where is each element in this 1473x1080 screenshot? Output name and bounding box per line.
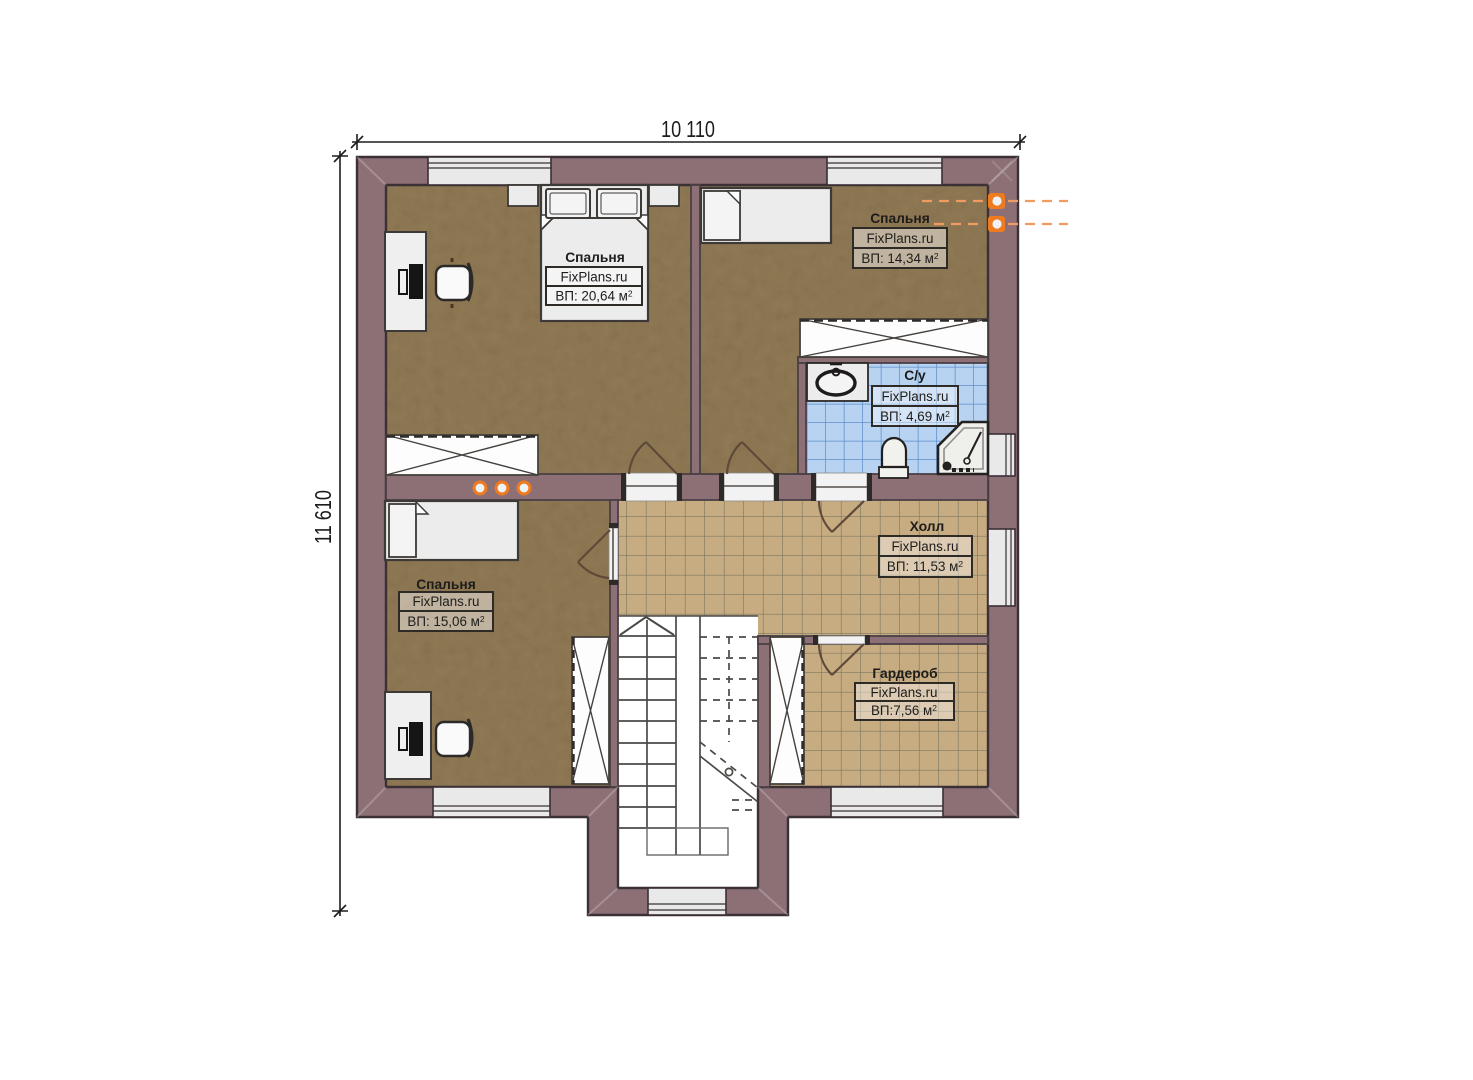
svg-text:FixPlans.ru: FixPlans.ru <box>561 270 628 285</box>
svg-text:Гардероб: Гардероб <box>872 666 937 681</box>
svg-text:ВП: 20,64 м2: ВП: 20,64 м2 <box>555 289 632 304</box>
svg-text:ВП: 11,53 м2: ВП: 11,53 м2 <box>887 559 963 574</box>
svg-text:Спальня: Спальня <box>870 211 930 226</box>
svg-text:Спальня: Спальня <box>416 577 476 592</box>
svg-text:FixPlans.ru: FixPlans.ru <box>882 389 949 404</box>
svg-text:FixPlans.ru: FixPlans.ru <box>413 594 480 609</box>
svg-text:10 110: 10 110 <box>661 116 715 142</box>
svg-text:Спальня: Спальня <box>565 250 625 265</box>
svg-text:ВП: 14,34 м2: ВП: 14,34 м2 <box>861 251 938 266</box>
svg-text:ВП: 15,06 м2: ВП: 15,06 м2 <box>407 614 484 629</box>
svg-text:ВП: 4,69 м2: ВП: 4,69 м2 <box>880 409 950 424</box>
svg-text:Холл: Холл <box>910 519 945 534</box>
svg-text:FixPlans.ru: FixPlans.ru <box>892 539 959 554</box>
svg-text:С/у: С/у <box>904 368 926 383</box>
svg-text:11 610: 11 610 <box>310 490 336 544</box>
svg-text:FixPlans.ru: FixPlans.ru <box>871 685 938 700</box>
svg-text:FixPlans.ru: FixPlans.ru <box>867 231 934 246</box>
svg-text:ВП:7,56 м2: ВП:7,56 м2 <box>871 703 937 718</box>
